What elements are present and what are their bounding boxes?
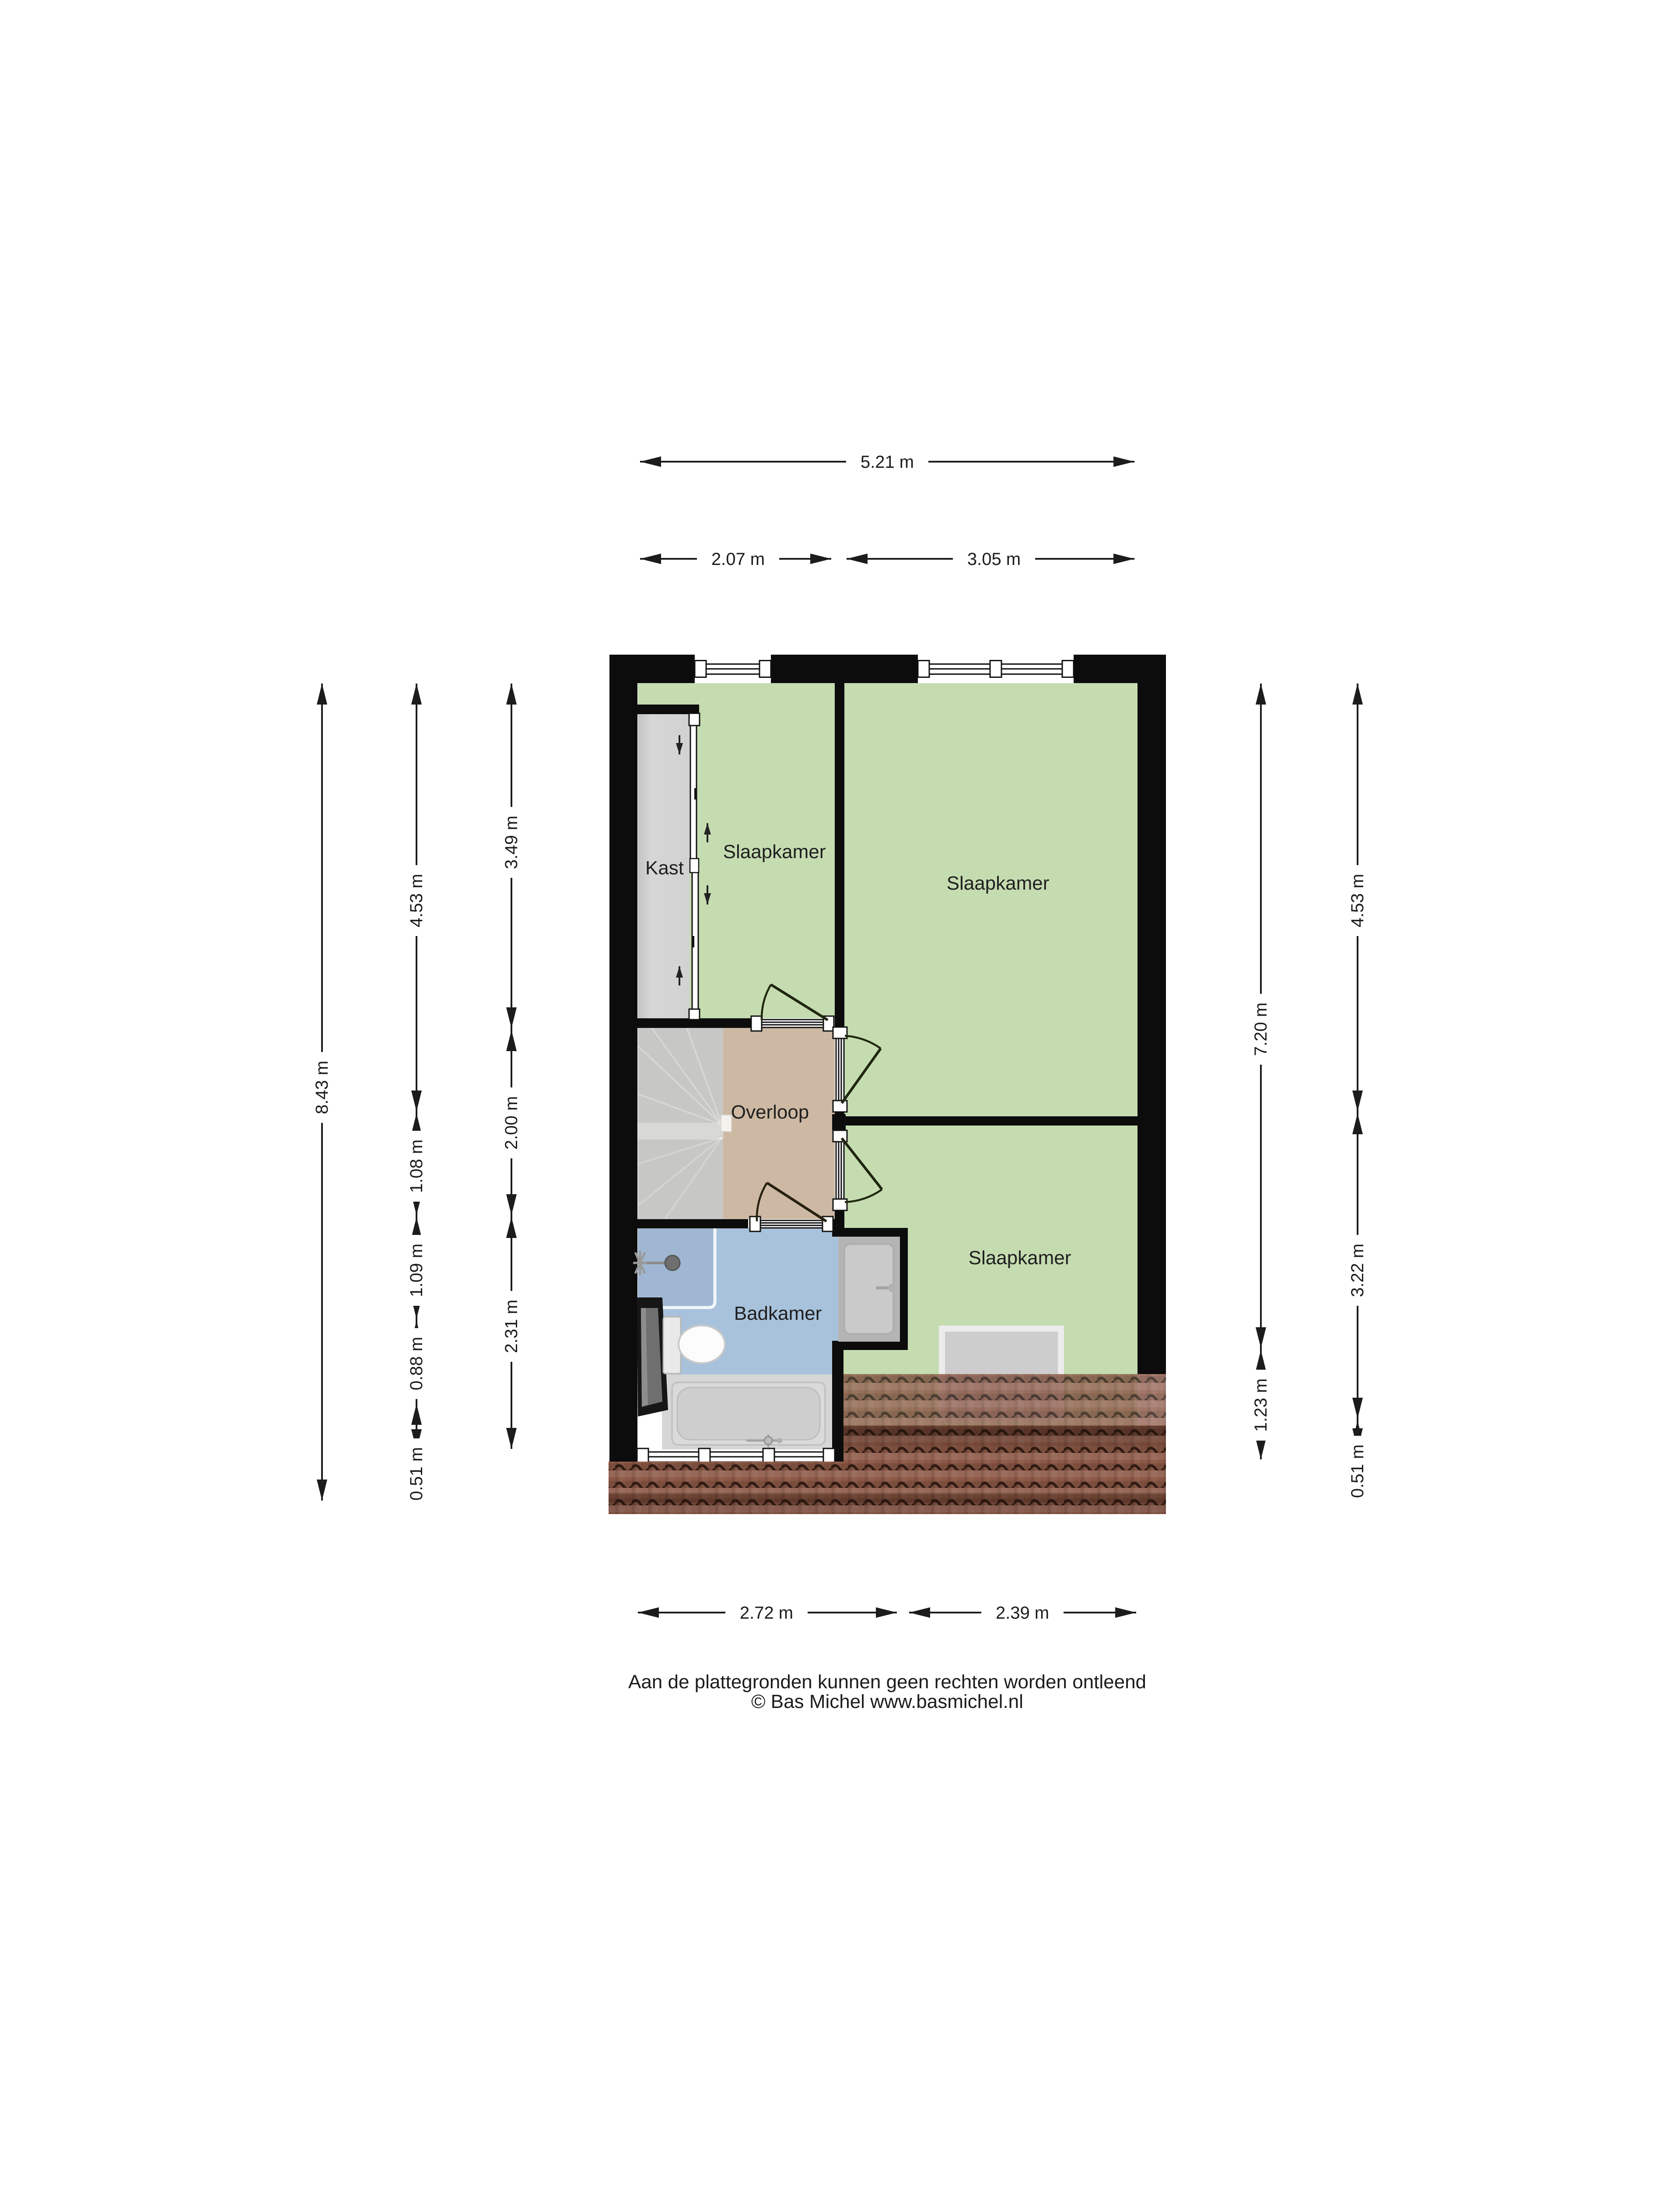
svg-text:2.00 m: 2.00 m <box>502 1096 521 1150</box>
svg-text:2.72 m: 2.72 m <box>740 1603 793 1623</box>
svg-text:8.43 m: 8.43 m <box>312 1061 332 1114</box>
svg-text:2.07 m: 2.07 m <box>711 550 765 569</box>
svg-text:7.20 m: 7.20 m <box>1251 1003 1270 1056</box>
svg-text:Slaapkamer: Slaapkamer <box>723 841 826 863</box>
svg-text:Aan de plattegronden kunnen ge: Aan de plattegronden kunnen geen rechten… <box>628 1671 1146 1693</box>
svg-text:3.49 m: 3.49 m <box>502 816 521 869</box>
svg-text:1.08 m: 1.08 m <box>407 1140 426 1193</box>
svg-text:5.21 m: 5.21 m <box>861 452 914 472</box>
svg-text:2.39 m: 2.39 m <box>996 1603 1049 1623</box>
svg-text:3.22 m: 3.22 m <box>1348 1244 1367 1297</box>
svg-text:3.05 m: 3.05 m <box>967 550 1021 569</box>
svg-text:Slaapkamer: Slaapkamer <box>947 873 1050 894</box>
svg-text:Badkamer: Badkamer <box>734 1303 822 1324</box>
svg-text:0.51 m: 0.51 m <box>1348 1445 1367 1498</box>
svg-text:Overloop: Overloop <box>731 1101 809 1123</box>
svg-text:4.53 m: 4.53 m <box>1348 874 1367 927</box>
svg-text:0.51 m: 0.51 m <box>407 1447 426 1501</box>
svg-text:Kast: Kast <box>645 857 684 879</box>
svg-text:1.09 m: 1.09 m <box>407 1244 426 1297</box>
svg-text:Slaapkamer: Slaapkamer <box>969 1247 1071 1269</box>
svg-text:1.23 m: 1.23 m <box>1251 1378 1270 1432</box>
svg-text:0.88 m: 0.88 m <box>407 1337 426 1390</box>
svg-text:4.53 m: 4.53 m <box>407 874 426 927</box>
svg-text:2.31 m: 2.31 m <box>502 1300 521 1353</box>
svg-text:© Bas Michel www.basmichel.nl: © Bas Michel www.basmichel.nl <box>751 1691 1023 1712</box>
